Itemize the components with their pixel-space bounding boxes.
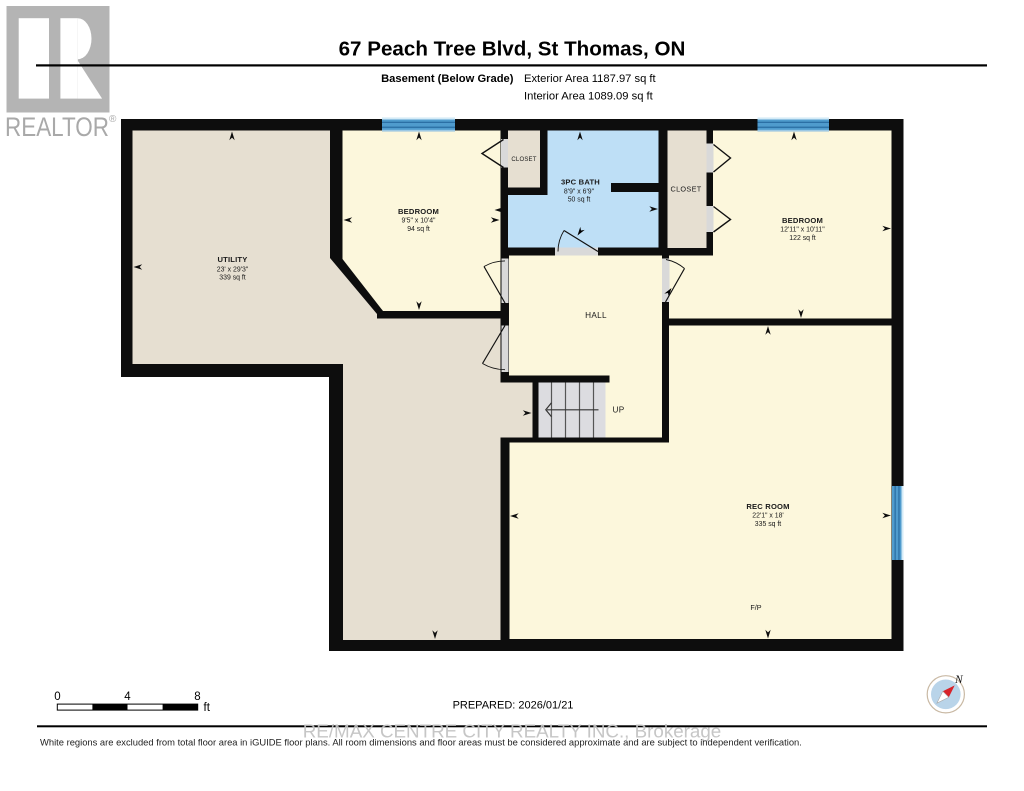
svg-text:Interior Area 1089.09 sq ft: Interior Area 1089.09 sq ft [524,90,654,102]
svg-text:12'11" x 10'11": 12'11" x 10'11" [780,226,825,233]
svg-text:Exterior Area 1187.97 sq ft: Exterior Area 1187.97 sq ft [524,73,657,85]
svg-text:Basement (Below Grade): Basement (Below Grade) [381,73,514,85]
svg-text:HALL: HALL [585,311,607,320]
svg-text:0: 0 [54,691,60,703]
svg-text:335 sq ft: 335 sq ft [755,521,782,528]
svg-text:BEDROOM: BEDROOM [398,207,439,216]
svg-text:REC ROOM: REC ROOM [746,502,789,511]
svg-text:®: ® [109,114,117,125]
svg-text:339 sq ft: 339 sq ft [219,274,246,281]
svg-text:BEDROOM: BEDROOM [782,216,823,225]
svg-text:White regions are excluded fro: White regions are excluded from total fl… [40,737,802,748]
svg-text:CLOSET: CLOSET [511,157,536,163]
svg-text:UP: UP [613,406,625,415]
svg-text:CLOSET: CLOSET [671,184,702,193]
svg-text:50 sq ft: 50 sq ft [568,197,591,204]
svg-text:REALTOR: REALTOR [5,112,109,142]
svg-text:94 sq ft: 94 sq ft [407,226,430,233]
svg-text:UTILITY: UTILITY [217,255,247,264]
svg-text:4: 4 [124,691,131,703]
svg-text:67 Peach Tree Blvd, St Thomas,: 67 Peach Tree Blvd, St Thomas, ON [339,38,686,61]
svg-text:PREPARED: 2026/01/21: PREPARED: 2026/01/21 [453,700,574,712]
svg-text:23' x 29'3": 23' x 29'3" [217,266,249,273]
svg-text:22'1" x 18': 22'1" x 18' [752,512,784,519]
svg-text:8'9" x 6'9": 8'9" x 6'9" [564,189,595,196]
svg-text:9'5" x 10'4": 9'5" x 10'4" [402,217,437,224]
svg-text:F/P: F/P [750,603,761,612]
svg-text:ft: ft [204,702,211,714]
svg-text:8: 8 [194,691,200,703]
svg-text:N: N [954,674,964,686]
svg-text:3PC BATH: 3PC BATH [561,178,600,187]
svg-text:122 sq ft: 122 sq ft [789,235,816,242]
